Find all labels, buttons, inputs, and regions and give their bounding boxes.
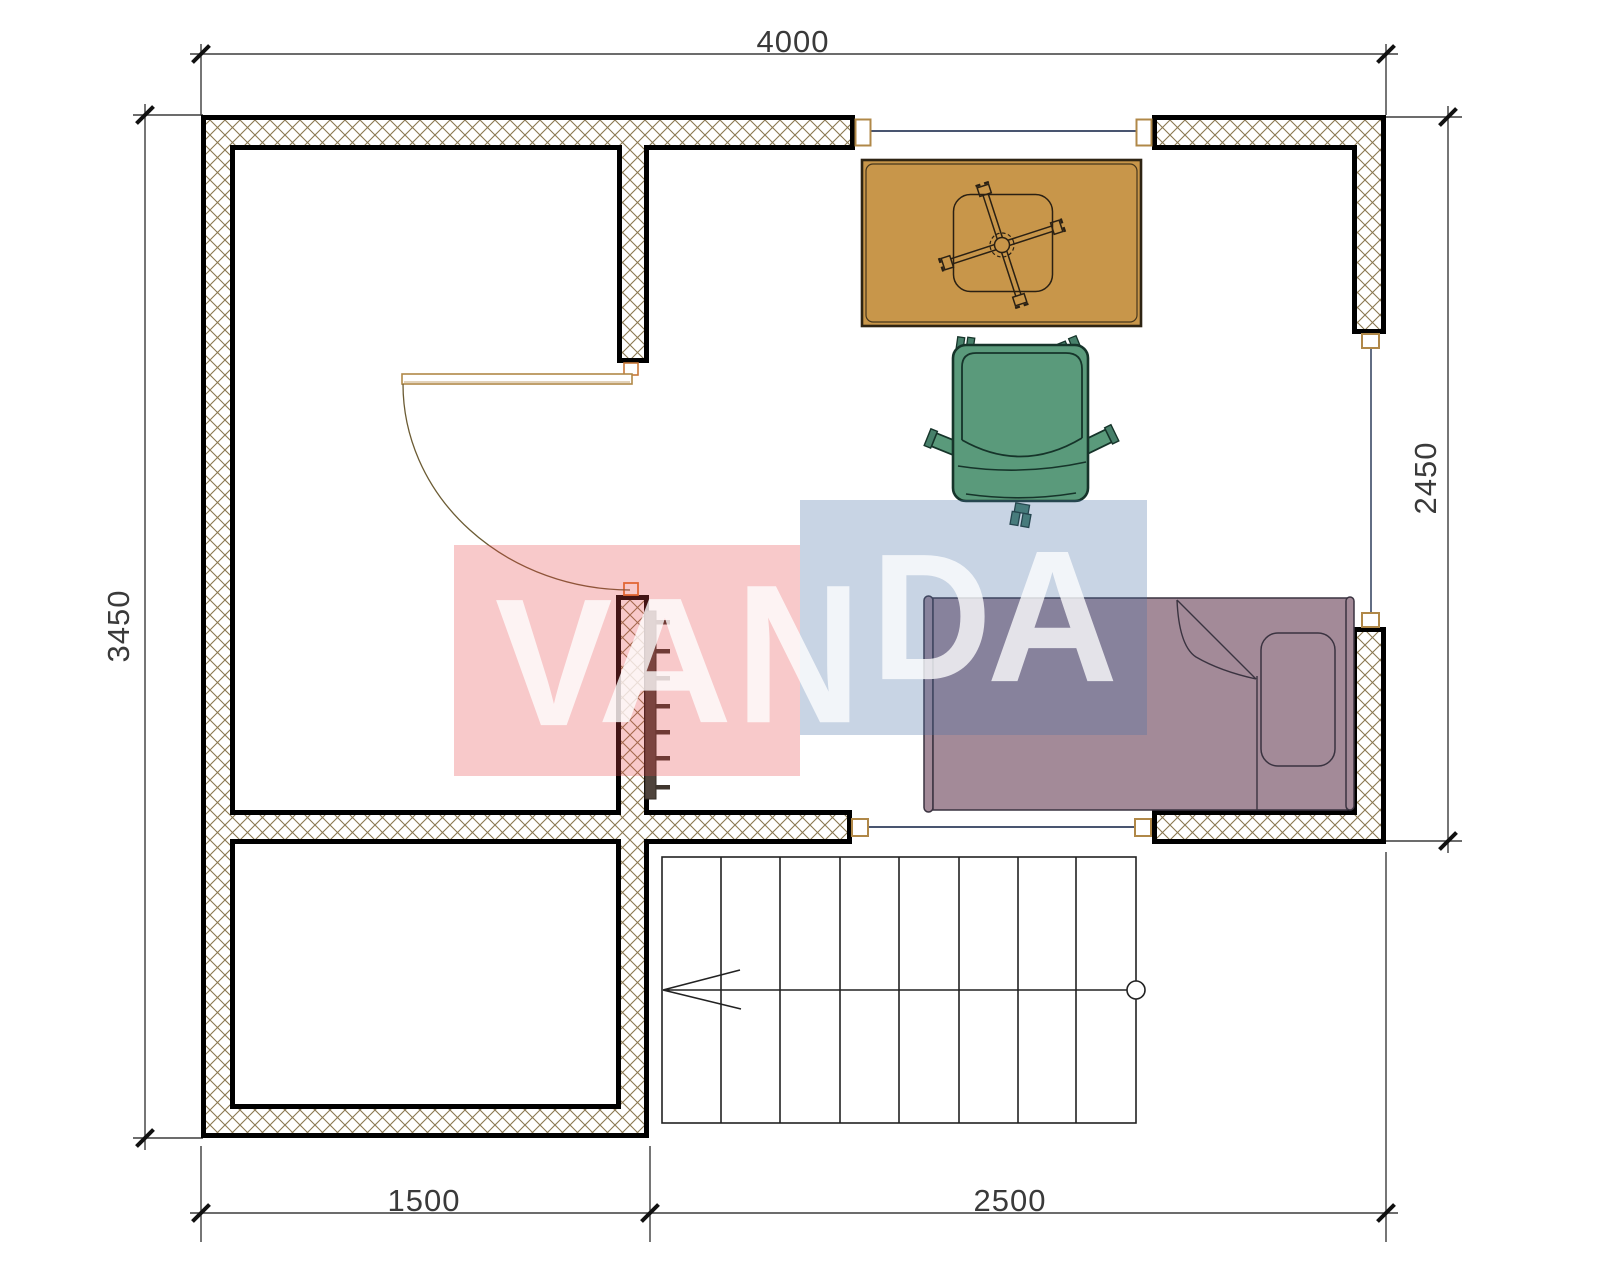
svg-text:3450: 3450 (101, 590, 136, 663)
svg-text:4000: 4000 (757, 24, 830, 59)
svg-text:A: A (598, 561, 733, 761)
svg-text:2450: 2450 (1408, 442, 1443, 515)
svg-text:1500: 1500 (388, 1183, 461, 1218)
svg-text:2500: 2500 (974, 1183, 1047, 1218)
svg-text:V: V (495, 561, 613, 764)
svg-text:N: N (736, 545, 861, 765)
svg-text:D: D (871, 516, 991, 717)
svg-text:A: A (987, 513, 1118, 722)
